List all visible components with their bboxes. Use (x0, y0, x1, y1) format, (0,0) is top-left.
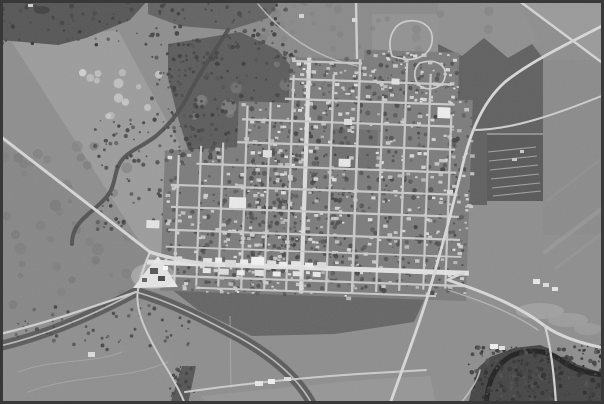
aerial-photo-frame (0, 0, 604, 404)
film-grain-overlay (0, 0, 604, 404)
aerial-photograph (0, 0, 604, 404)
page: { "meta": { "kind": "grayscale aerial ph… (0, 0, 604, 404)
